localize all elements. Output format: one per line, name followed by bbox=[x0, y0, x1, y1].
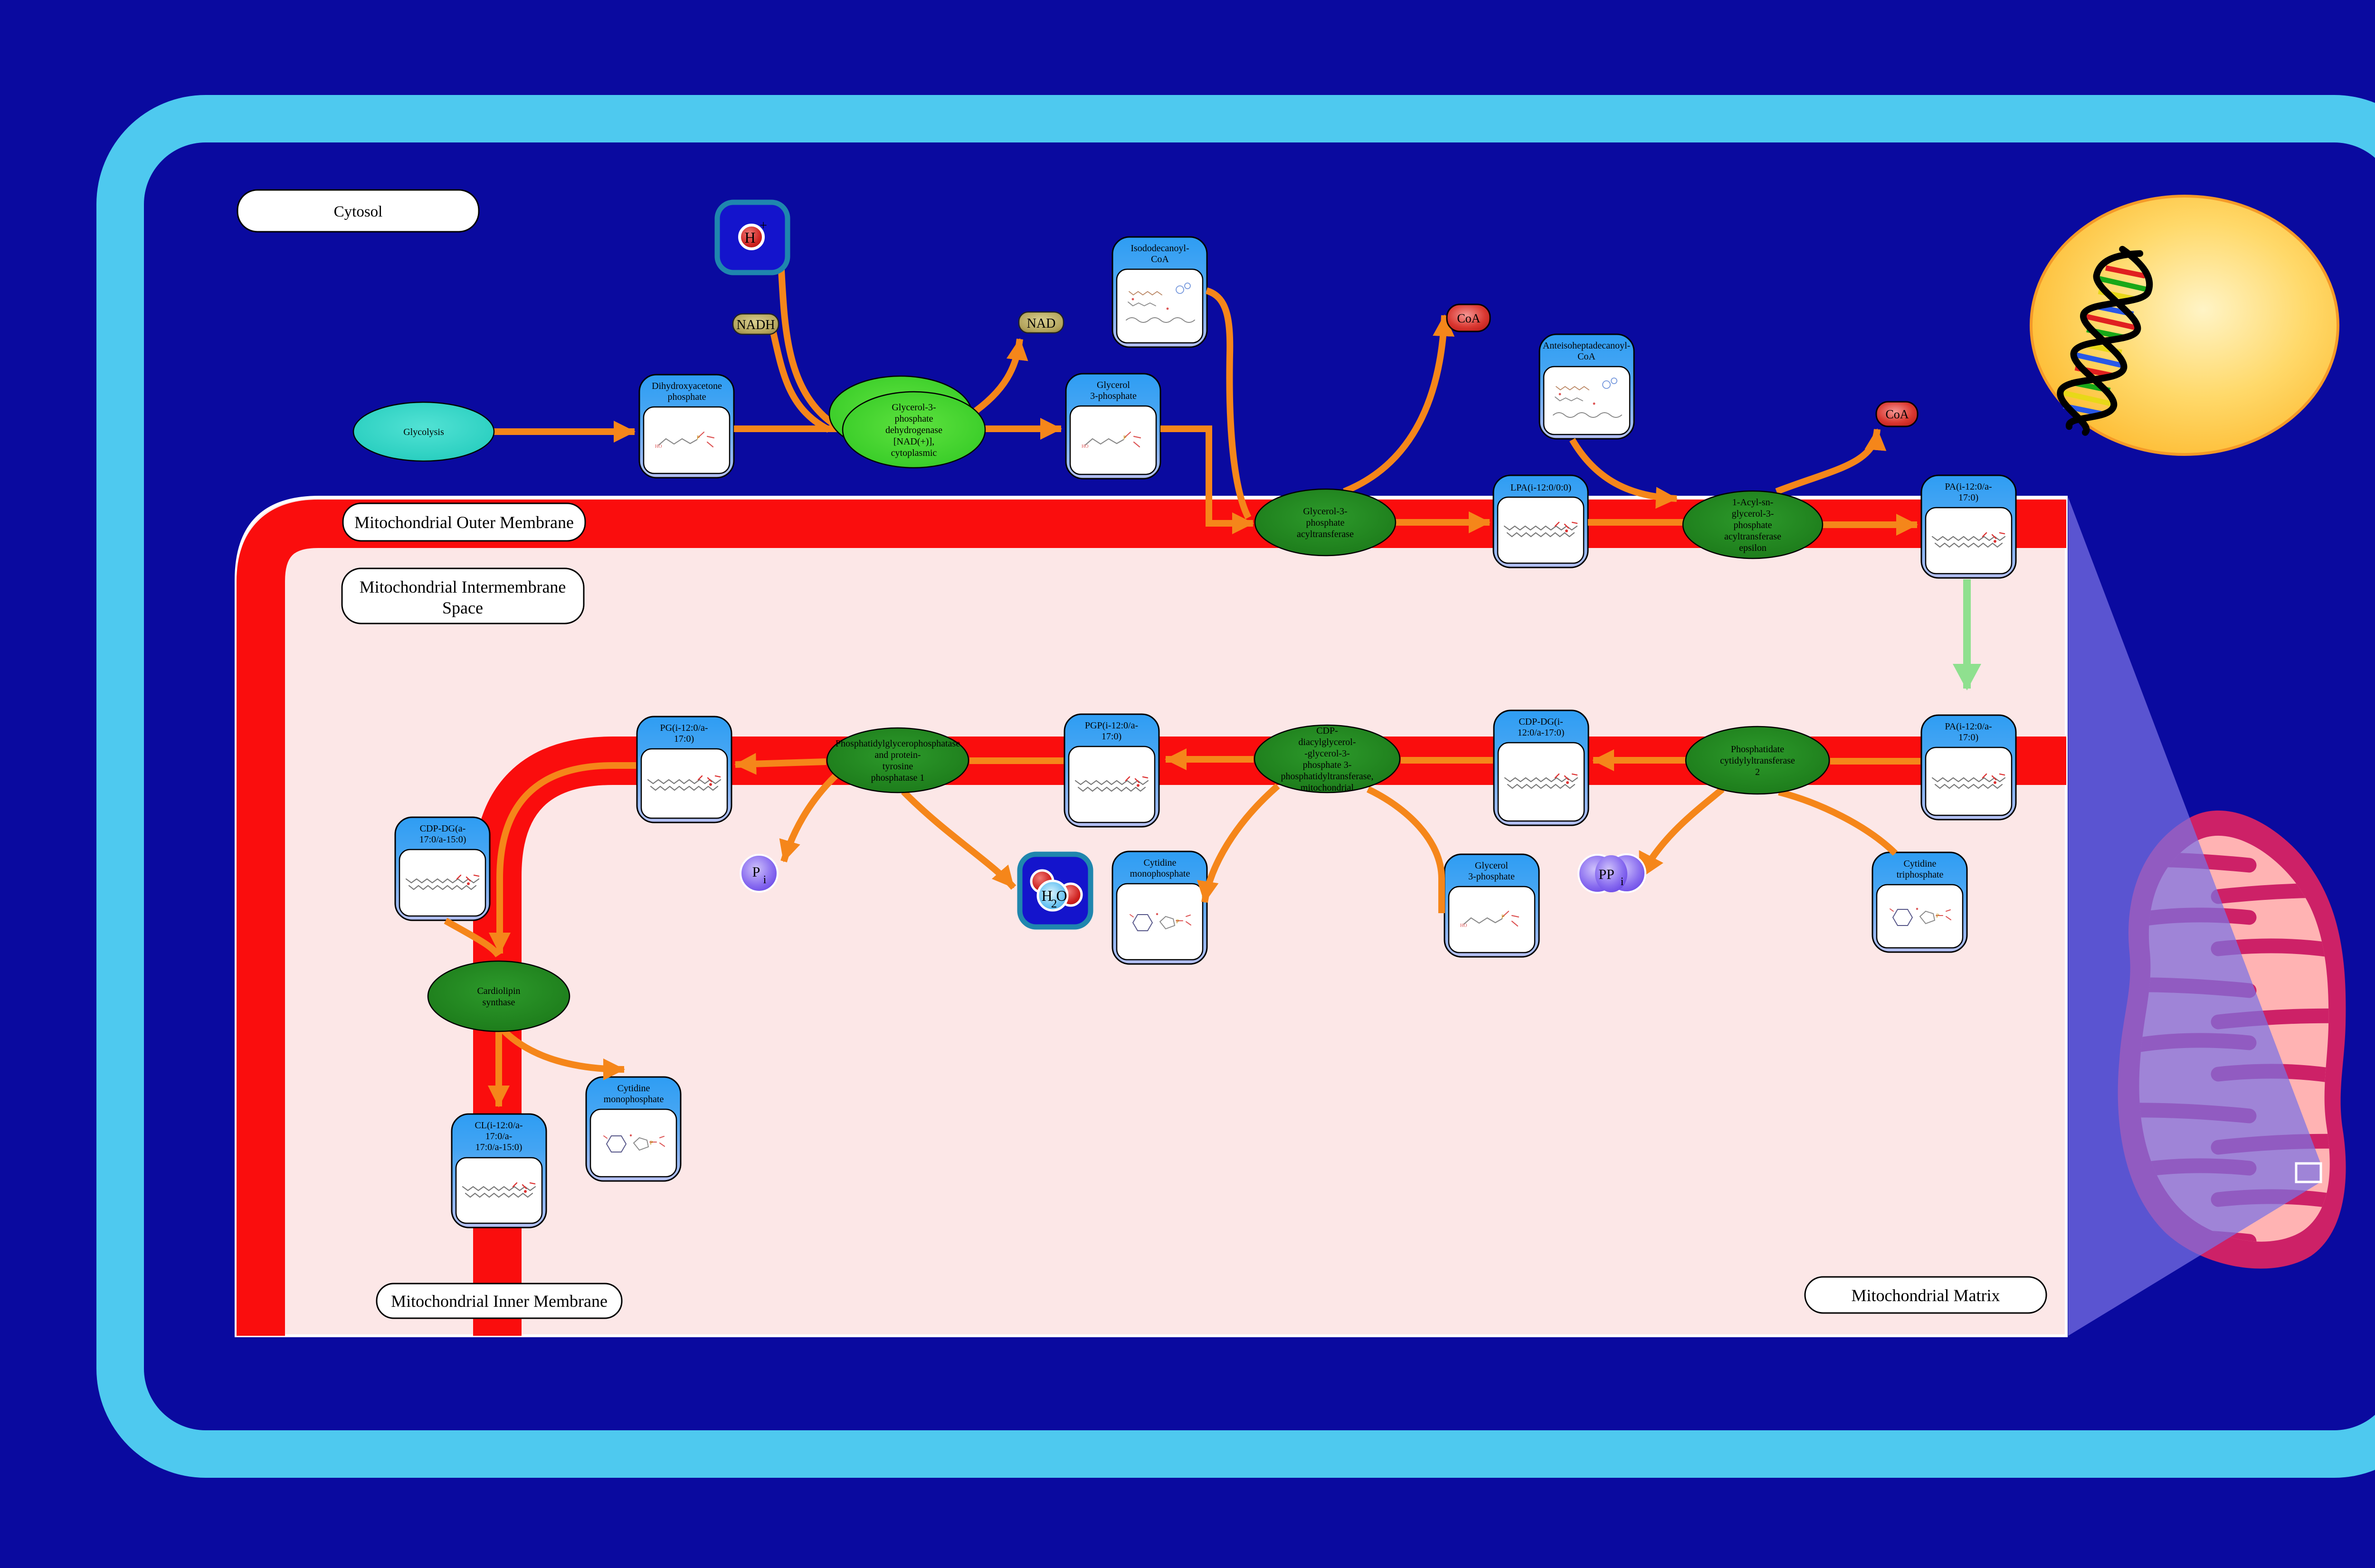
svg-text:NAD: NAD bbox=[1027, 316, 1056, 331]
svg-text:P: P bbox=[697, 434, 700, 441]
svg-text:i: i bbox=[763, 874, 767, 886]
svg-text:Space: Space bbox=[442, 598, 483, 617]
svg-text:P: P bbox=[1176, 918, 1179, 925]
svg-text:P: P bbox=[1501, 913, 1505, 920]
svg-text:P: P bbox=[752, 864, 760, 880]
svg-text:NADH: NADH bbox=[737, 318, 775, 332]
svg-text:+: + bbox=[760, 218, 767, 233]
svg-text:CDP-DG(i-12:0/a-17:0): CDP-DG(i-12:0/a-17:0) bbox=[1518, 717, 1565, 738]
svg-text:Mitochondrial Outer Membrane: Mitochondrial Outer Membrane bbox=[354, 513, 574, 532]
svg-text:Mitochondrial Intermembrane: Mitochondrial Intermembrane bbox=[360, 577, 566, 596]
svg-text:HO: HO bbox=[655, 444, 662, 449]
svg-text:H: H bbox=[744, 229, 755, 246]
svg-text:Mitochondrial Matrix: Mitochondrial Matrix bbox=[1852, 1286, 2000, 1305]
svg-text:PP: PP bbox=[1598, 867, 1614, 882]
svg-text:i: i bbox=[1621, 876, 1624, 888]
svg-text:LPA(i-12:0/0:0): LPA(i-12:0/0:0) bbox=[1510, 482, 1571, 493]
svg-text:Glycerol3-phosphate: Glycerol3-phosphate bbox=[1468, 860, 1515, 882]
svg-text:O: O bbox=[1056, 887, 1067, 904]
svg-text:CDP-DG(a-17:0/a-15:0): CDP-DG(a-17:0/a-15:0) bbox=[419, 823, 466, 845]
svg-text:Glycerol-3-phosphatedehydrogen: Glycerol-3-phosphatedehydrogenase[NAD(+)… bbox=[885, 402, 942, 458]
svg-text:P: P bbox=[1123, 434, 1127, 441]
svg-text:Cytosol: Cytosol bbox=[334, 203, 383, 220]
svg-text:Glycerol3-phosphate: Glycerol3-phosphate bbox=[1090, 380, 1137, 401]
svg-text:P: P bbox=[650, 1139, 653, 1146]
svg-text:HO: HO bbox=[1460, 923, 1467, 928]
svg-text:Mitochondrial Inner Membrane: Mitochondrial Inner Membrane bbox=[391, 1292, 608, 1311]
svg-text:CoA: CoA bbox=[1885, 407, 1909, 421]
svg-text:HO: HO bbox=[1082, 444, 1088, 449]
svg-text:P: P bbox=[1936, 912, 1939, 919]
svg-text:CoA: CoA bbox=[1457, 312, 1480, 325]
svg-text:Glycolysis: Glycolysis bbox=[403, 427, 444, 437]
